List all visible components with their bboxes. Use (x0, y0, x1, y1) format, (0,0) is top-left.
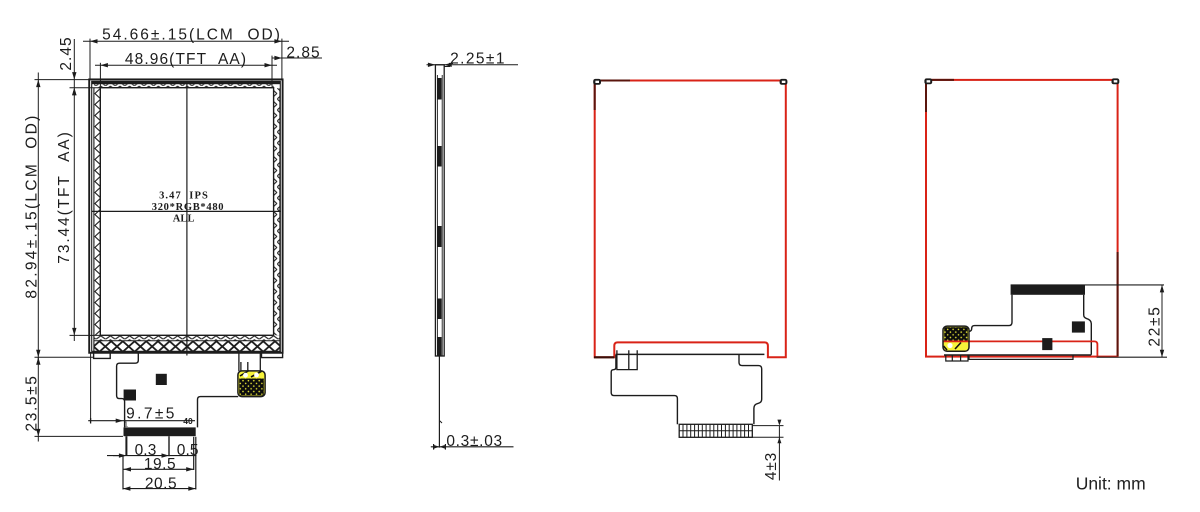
svg-text:73.44(TFT AA): 73.44(TFT AA) (56, 130, 73, 263)
svg-text:2.45: 2.45 (58, 36, 75, 70)
svg-text:2.25±1: 2.25±1 (450, 51, 506, 68)
svg-text:22±5: 22±5 (1147, 305, 1164, 346)
svg-text:48.96(TFT AA): 48.96(TFT AA) (125, 51, 247, 68)
svg-text:1: 1 (124, 420, 128, 429)
svg-text:3.47 IPS: 3.47 IPS (159, 191, 209, 202)
svg-text:0.3±.03: 0.3±.03 (446, 433, 503, 450)
svg-text:82.94±.15(LCM OD): 82.94±.15(LCM OD) (24, 113, 41, 298)
svg-text:40: 40 (183, 416, 193, 426)
svg-text:0.5: 0.5 (177, 442, 199, 459)
svg-text:54.66±.15(LCM OD): 54.66±.15(LCM OD) (102, 26, 282, 43)
svg-text:20.5: 20.5 (145, 475, 177, 492)
svg-text:23.5±5: 23.5±5 (24, 375, 41, 432)
svg-text:9.7±5: 9.7±5 (126, 405, 177, 422)
svg-text:4±3: 4±3 (763, 452, 780, 480)
svg-text:320*RGB*480: 320*RGB*480 (152, 202, 224, 213)
svg-text:2.85: 2.85 (286, 44, 320, 61)
svg-text:ALL: ALL (173, 213, 195, 224)
svg-text:Unit: mm: Unit: mm (1076, 474, 1146, 494)
svg-text:19.5: 19.5 (144, 456, 176, 473)
